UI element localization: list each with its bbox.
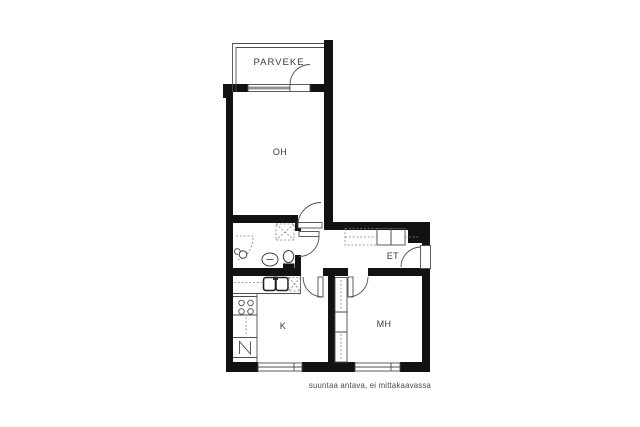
burner [239, 300, 245, 306]
door-frame [421, 246, 431, 269]
hall-cabinet [377, 229, 391, 246]
kitchen-sink-icon [264, 277, 289, 291]
room-label-bedroom: MH [377, 319, 392, 329]
door-entry [401, 246, 431, 269]
toilet-tank [283, 264, 295, 270]
window-living-room-balcony [248, 85, 290, 92]
door-leaf [299, 232, 319, 237]
bedroom-closets [335, 278, 347, 363]
washing-machine-reservation-icon [276, 224, 294, 240]
disclaimer-note: suuntaa antava, ei mittakaavassa [309, 381, 432, 390]
burner [248, 300, 254, 306]
toilet-icon [283, 251, 295, 270]
washbasin-icon [262, 253, 278, 266]
room-label-living-room: OH [273, 147, 287, 157]
refrigerator-icon [240, 342, 251, 355]
door-kitchen [303, 277, 323, 297]
door-swing-arc [299, 237, 319, 257]
hall-cabinet [391, 229, 405, 246]
door-balcony [290, 65, 310, 92]
window-frame [248, 85, 290, 92]
burner [248, 309, 254, 315]
dishwasher-reservation-icon [289, 278, 301, 292]
doors [290, 65, 431, 298]
toilet-bowl [283, 251, 293, 263]
room-label-balcony: PARVEKE [253, 57, 304, 68]
door-leaf [348, 277, 353, 297]
floor-plan-page: PARVEKE OH ET K MH suuntaa antava, ei mi… [0, 0, 640, 427]
room-label-entry: ET [387, 251, 399, 261]
door-leaf [298, 223, 322, 229]
closet [335, 312, 347, 332]
door-leaf [290, 85, 310, 92]
door-bedroom [348, 277, 368, 297]
sink-tap [273, 277, 278, 281]
burner [239, 309, 245, 315]
stove-icon [239, 300, 254, 314]
window-kitchen [258, 363, 302, 371]
shower-icon [234, 249, 246, 259]
window-bedroom [355, 363, 400, 371]
door-leaf [318, 277, 323, 297]
room-label-kitchen: K [280, 321, 286, 331]
door-living-room [298, 203, 322, 229]
hall-wardrobes [345, 229, 419, 246]
shower-head [239, 251, 247, 259]
kitchen-fixtures [233, 276, 301, 362]
bathroom-fixtures [234, 224, 294, 270]
floor-plan-drawing: PARVEKE OH ET K MH suuntaa antava, ei mi… [0, 0, 640, 427]
door-bathroom [299, 232, 319, 257]
door-swing-arc [401, 247, 421, 267]
